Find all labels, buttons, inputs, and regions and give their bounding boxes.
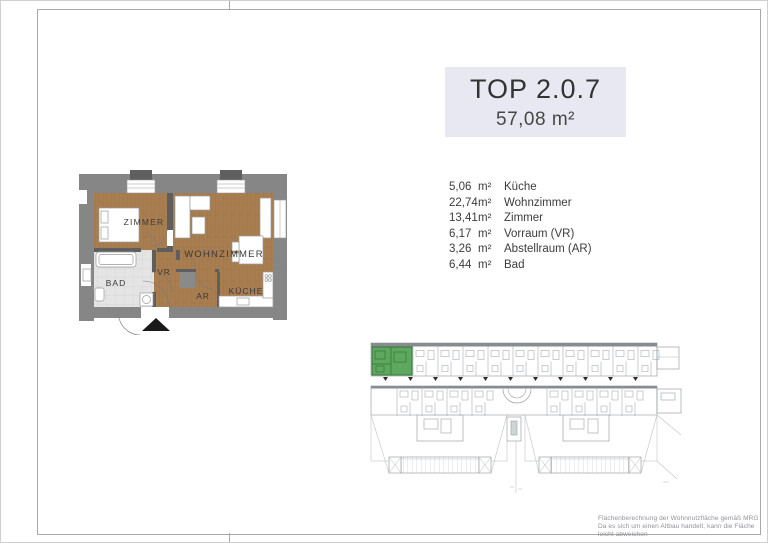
unit-floorplan: ZIMMER WOHNZIMMER BAD VR AR KÜCHE: [79, 160, 301, 335]
floorplan-sheet: TOP 2.0.7 57,08 m² 5,06 m² Küche 22,74 m…: [0, 0, 768, 543]
highlighted-unit: [372, 347, 412, 375]
washer: [140, 293, 153, 306]
room-area-unit: m²: [478, 180, 504, 196]
terraces: [389, 457, 641, 473]
room-label-vr: VR: [157, 267, 170, 277]
building-top-row: [371, 343, 679, 376]
room-label-wohnzimmer: WOHNZIMMER: [184, 249, 264, 260]
room-label-bad: BAD: [106, 278, 126, 288]
room-area: 13,41: [449, 211, 478, 227]
title-block: TOP 2.0.7 57,08 m²: [445, 67, 626, 137]
room-list: 5,06 m² Küche 22,74 m² Wohnzimmer 13,41 …: [449, 180, 592, 274]
room-area-unit: m²: [478, 258, 504, 274]
fold-mark-bottom: [229, 533, 230, 543]
room-name: Abstellraum (AR): [504, 242, 592, 258]
room-name: Wohnzimmer: [504, 196, 572, 212]
cabinet: [260, 198, 271, 238]
room-label-zimmer: ZIMMER: [124, 217, 165, 227]
sofa: [190, 196, 210, 210]
unit-total-area: 57,08 m²: [496, 109, 575, 131]
sink: [83, 269, 91, 281]
room-label-ar: AR: [196, 291, 209, 301]
footer-line-1: Flächenberechnung der Wohnnutzfläche gem…: [598, 515, 760, 523]
footer-note: Flächenberechnung der Wohnnutzfläche gem…: [598, 515, 760, 539]
room-area: 6,17: [449, 227, 478, 243]
hob: [265, 279, 268, 282]
room-name: Bad: [504, 258, 524, 274]
room-name: Küche: [504, 180, 537, 196]
shaft: [179, 272, 195, 288]
pillow: [101, 211, 108, 223]
room-label-kueche: KÜCHE: [229, 286, 264, 296]
room-row: 6,17 m² Vorraum (VR): [449, 227, 592, 243]
room-row: 5,06 m² Küche: [449, 180, 592, 196]
site-plan: [367, 339, 685, 499]
sofa: [175, 196, 190, 238]
entrance-markers: [383, 377, 638, 381]
lower-annexes: [417, 415, 609, 441]
building-middle-row: [371, 386, 681, 416]
courtyards: [371, 415, 681, 493]
room-row: 13,41 m² Zimmer: [449, 211, 592, 227]
pillow: [101, 227, 108, 239]
room-area-unit: m²: [478, 211, 504, 227]
hob: [265, 275, 268, 278]
entrance-opening: [141, 307, 169, 318]
fold-mark-top: [229, 1, 230, 9]
room-area: 6,44: [449, 258, 478, 274]
hob: [269, 279, 272, 282]
room-row: 6,44 m² Bad: [449, 258, 592, 274]
entrance-arrow: [142, 318, 170, 331]
footer-line-2: Da es sich um einen Altbau handelt, kann…: [598, 523, 760, 539]
room-name: Vorraum (VR): [504, 227, 574, 243]
room-area-unit: m²: [478, 227, 504, 243]
room-area: 22,74: [449, 196, 478, 212]
hob: [269, 275, 272, 278]
wall-niche: [79, 190, 87, 204]
room-area: 3,26: [449, 242, 478, 258]
room-row: 3,26 m² Abstellraum (AR): [449, 242, 592, 258]
room-row: 22,74 m² Wohnzimmer: [449, 196, 592, 212]
toilet: [95, 288, 104, 301]
room-area-unit: m²: [478, 196, 504, 212]
stove: [237, 298, 249, 305]
room-area-unit: m²: [478, 242, 504, 258]
room-name: Zimmer: [504, 211, 543, 227]
room-area: 5,06: [449, 180, 478, 196]
ottoman: [192, 217, 205, 234]
unit-title: TOP 2.0.7: [470, 74, 601, 105]
